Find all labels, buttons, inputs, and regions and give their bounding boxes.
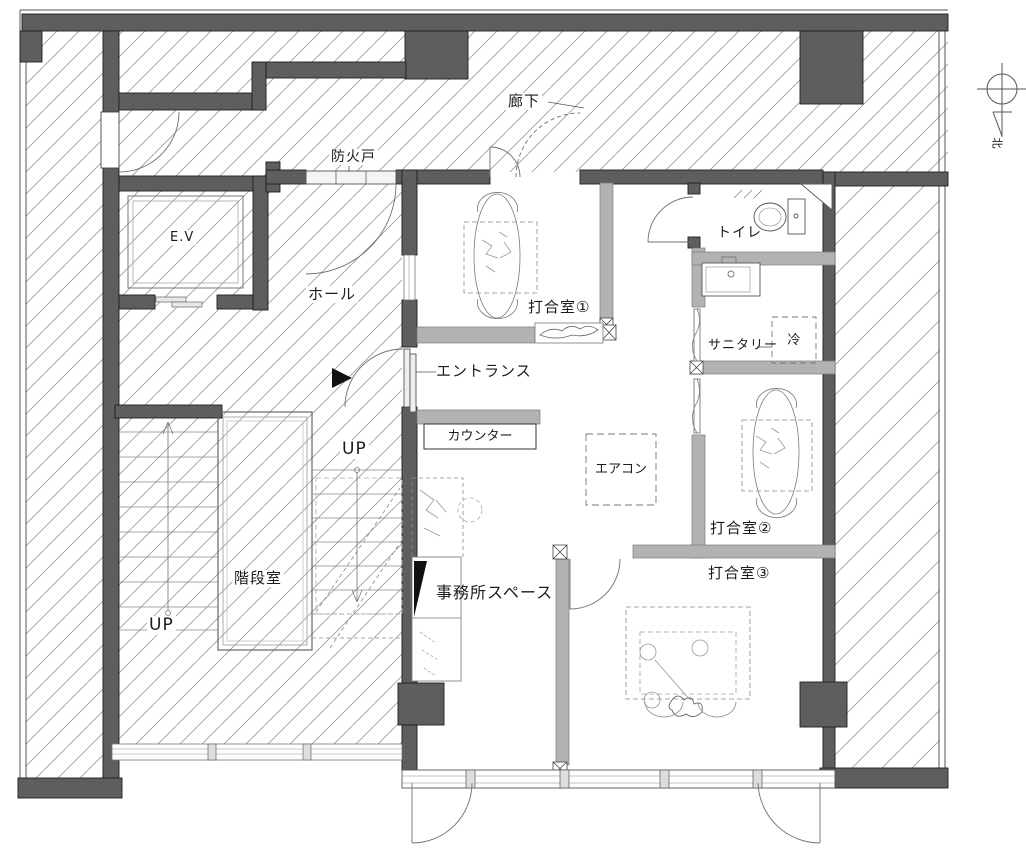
sanitary-fixtures (702, 257, 760, 296)
meeting3-furniture (626, 607, 750, 717)
label-up-right: UP (340, 440, 369, 459)
label-counter: カウンター (424, 424, 536, 449)
label-toilet: トイレ (717, 226, 762, 240)
label-entrance: エントランス (436, 364, 532, 379)
label-air-conditioner: エアコン (586, 434, 656, 505)
elevator-door (172, 302, 202, 307)
label-sanitary: サニタリー (708, 339, 778, 352)
north-arrow-icon (977, 63, 1026, 137)
right-strip-hatch (835, 172, 940, 770)
label-meeting-room-2: 打合室② (710, 521, 772, 536)
elevator-door (156, 297, 186, 302)
meeting2-furniture (742, 388, 812, 517)
plant-shelf (535, 323, 603, 343)
meeting2-door (692, 379, 700, 433)
hall-window-band (112, 744, 402, 760)
exit-door-left (412, 783, 472, 843)
hall-hatch (26, 31, 402, 745)
sanitary-folding-door (692, 309, 700, 361)
label-elevator: E.V (168, 230, 196, 245)
label-office-space: 事務所スペース (436, 585, 553, 601)
label-stairwell: 階段室 (232, 570, 284, 587)
label-north: 北 (992, 138, 1003, 150)
toilet-door (648, 197, 693, 242)
label-corridor: 廊下 (506, 93, 542, 110)
meeting3-door (570, 559, 620, 609)
storefront-window-band (402, 770, 835, 788)
label-up-left: UP (147, 616, 176, 635)
floor-plan: 廊下 防火戸 E.V ホール エントランス カウンター 階段室 UP UP 事務… (0, 0, 1026, 860)
label-meeting-room-1: 打合室① (528, 300, 590, 315)
meeting1-furniture (464, 192, 537, 318)
label-hall: ホール (306, 286, 358, 303)
left-strip-hatch (26, 745, 103, 778)
label-refrigerator: 冷 (772, 317, 816, 363)
hatch-regions (26, 31, 948, 778)
corridor-hatch (402, 31, 948, 172)
label-fire-door: 防火戸 (329, 149, 378, 165)
side-window (404, 255, 415, 300)
exit-door-right (758, 783, 820, 843)
label-meeting-room-3: 打合室③ (708, 566, 770, 581)
